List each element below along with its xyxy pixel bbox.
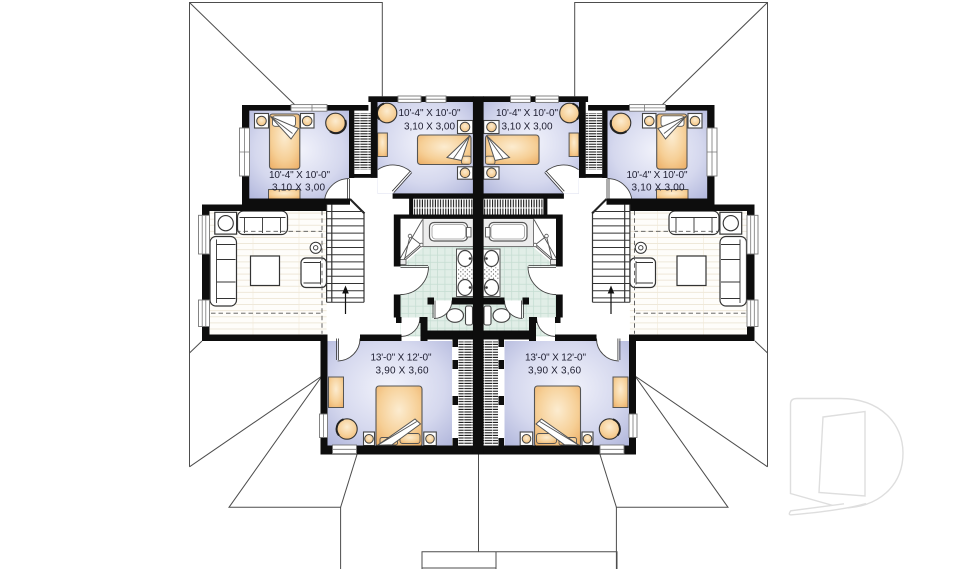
svg-text:3,10 X 3,00: 3,10 X 3,00 [502,122,553,133]
svg-text:3,90 X 3,60: 3,90 X 3,60 [376,366,429,377]
svg-text:3,90 X 3,60: 3,90 X 3,60 [528,366,581,377]
svg-text:10'-4" X 10'-0": 10'-4" X 10'-0" [399,108,461,119]
svg-text:3,10 X 3,00: 3,10 X 3,00 [632,183,685,194]
svg-text:13'-0" X 12'-0": 13'-0" X 12'-0" [371,353,432,364]
svg-text:3,10 X 3,00: 3,10 X 3,00 [404,122,455,133]
svg-text:10'-4" X 10'-0": 10'-4" X 10'-0" [496,108,558,119]
svg-text:10'-4" X 10'-0": 10'-4" X 10'-0" [269,170,330,181]
svg-text:3,10 X 3,00: 3,10 X 3,00 [272,183,325,194]
svg-text:13'-0" X 12'-0": 13'-0" X 12'-0" [525,353,586,364]
svg-text:10'-4" X 10'-0": 10'-4" X 10'-0" [627,170,688,181]
